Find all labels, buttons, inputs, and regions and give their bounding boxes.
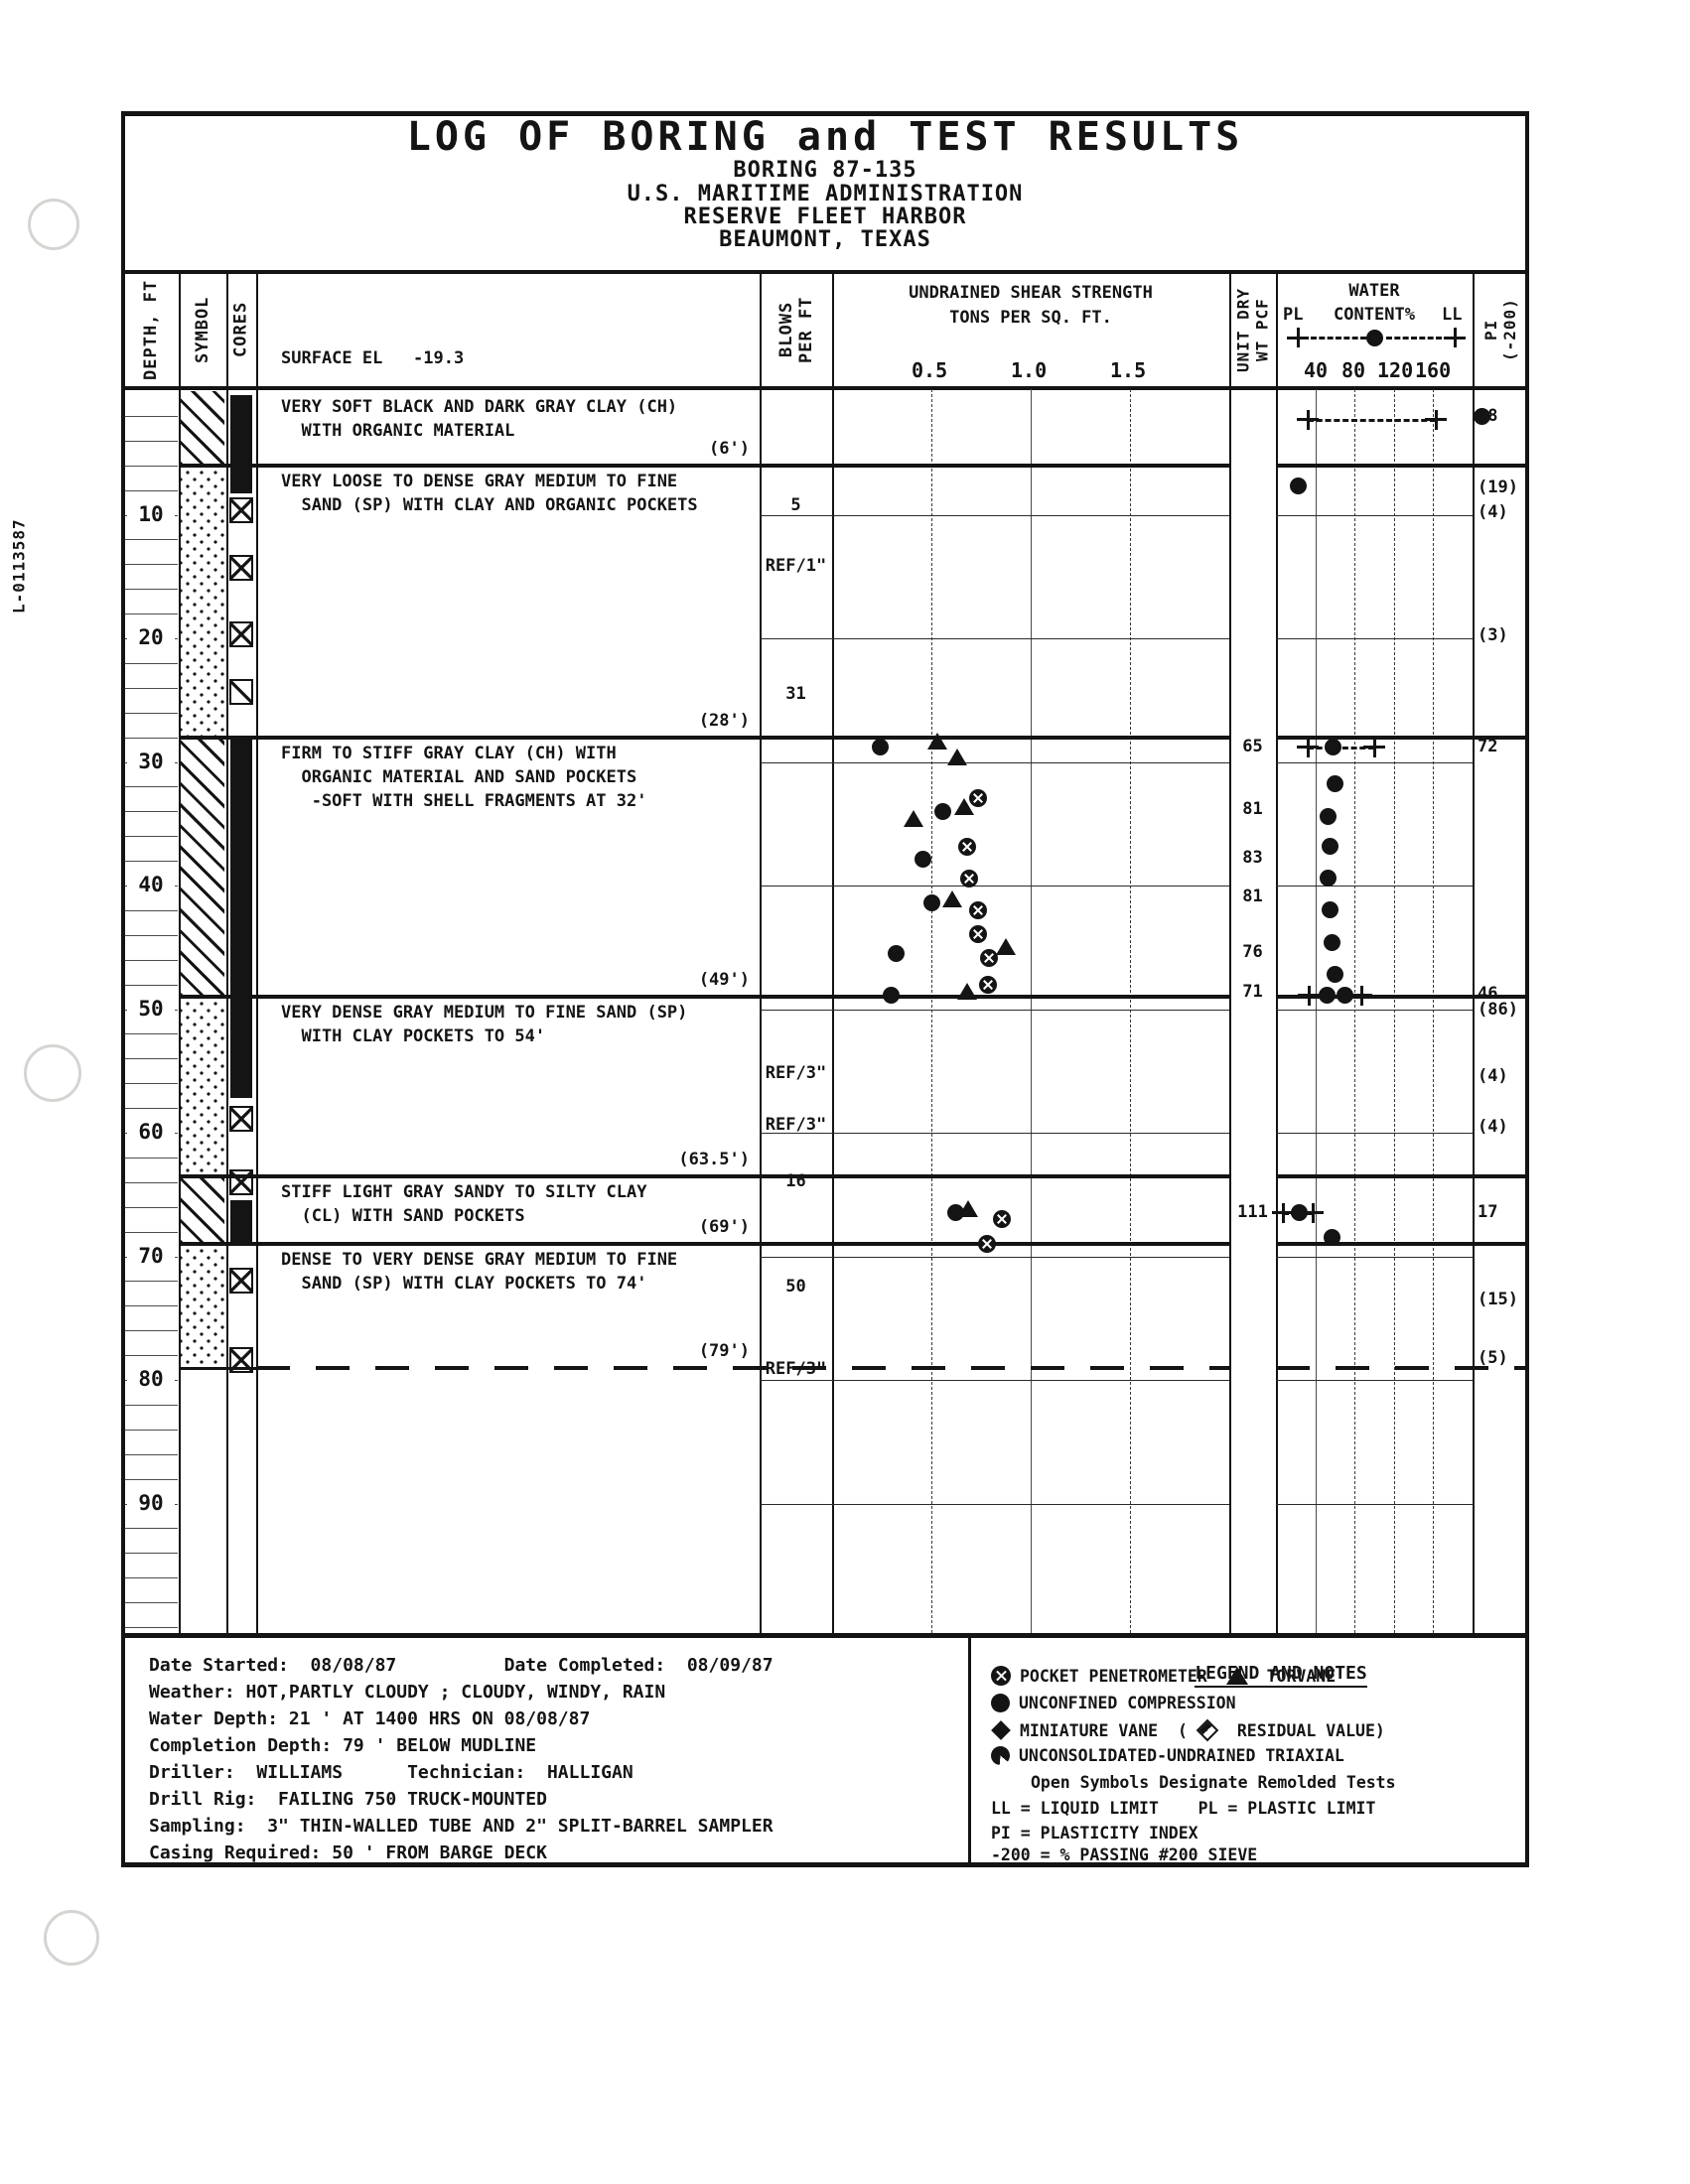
punch-hole	[44, 1910, 99, 1966]
layer-description: WITH ORGANIC MATERIAL	[281, 422, 514, 441]
layer-description: STIFF LIGHT GRAY SANDY TO SILTY CLAY	[281, 1183, 646, 1202]
shear-gridline	[931, 389, 932, 1633]
punch-hole	[28, 199, 79, 250]
legend-row: UNCONFINED COMPRESSION	[991, 1694, 1236, 1712]
legend-row: PI = PLASTICITY INDEX	[991, 1824, 1198, 1843]
unit-dry-wt-value: 71	[1229, 983, 1276, 1002]
depth-tick	[124, 935, 178, 936]
core-sample-mark	[229, 497, 253, 523]
layer-symbol-block	[181, 997, 224, 1176]
legend-row: MINIATURE VANE ( RESIDUAL VALUE)	[991, 1719, 1385, 1741]
shear-point-pocket-penetrometer	[960, 870, 978, 887]
legend-text: Open Symbols Designate Remolded Tests	[1031, 1773, 1396, 1792]
liquid-limit-mark	[1350, 986, 1372, 1006]
depth-tick	[124, 1182, 178, 1183]
legend-row: UNCONSOLIDATED-UNDRAINED TRIAXIAL	[991, 1746, 1344, 1765]
depth-tick	[124, 811, 178, 812]
legend-text: RESIDUAL VALUE)	[1227, 1721, 1385, 1740]
depth-gridline	[832, 1504, 1229, 1505]
layer-boundary-line	[179, 464, 1229, 468]
film-number-label: L-0113587	[2, 486, 36, 645]
punch-hole	[24, 1044, 81, 1102]
layer-symbol-block	[181, 391, 224, 466]
depth-tick	[124, 1232, 178, 1233]
water-content-dot	[1319, 987, 1336, 1004]
blows-value: REF/1"	[760, 557, 832, 576]
depth-tick	[124, 836, 178, 837]
depth-gridline	[760, 1504, 832, 1505]
legend-text: MINIATURE VANE (	[1020, 1721, 1188, 1740]
water-content-dot-icon	[1366, 330, 1383, 346]
layer-description: -SOFT WITH SHELL FRAGMENTS AT 32'	[281, 792, 646, 811]
depth-tick	[124, 1430, 178, 1431]
core-sample-mark	[229, 1268, 253, 1294]
layer-depth-tag: (28')	[650, 712, 750, 731]
water-gridline	[1433, 389, 1434, 1633]
depth-tick	[124, 1577, 178, 1578]
table-border-top	[121, 111, 1529, 116]
column-divider	[1473, 270, 1475, 1633]
col-header-shear-1: UNDRAINED SHEAR STRENGTH	[832, 284, 1229, 303]
column-divider	[256, 270, 258, 1633]
depth-tick	[124, 1330, 178, 1331]
legend-text: POCKET PENETROMETER	[1020, 1667, 1217, 1686]
blows-value: REF/3"	[760, 1360, 832, 1379]
liquid-limit-mark	[1425, 410, 1447, 430]
depth-tick	[124, 416, 178, 417]
water-gridline	[1354, 389, 1355, 1633]
legend-row: -200 = % PASSING #200 SIEVE	[991, 1845, 1257, 1864]
unconfined-compression-icon	[991, 1694, 1010, 1712]
water-content-dot	[1324, 934, 1340, 951]
layer-description: VERY LOOSE TO DENSE GRAY MEDIUM TO FINE	[281, 473, 677, 491]
depth-tick	[124, 441, 178, 442]
depth-tick	[124, 589, 178, 590]
layer-description: FIRM TO STIFF GRAY CLAY (CH) WITH	[281, 745, 617, 763]
depth-tick	[124, 614, 178, 614]
shear-point-torvane	[957, 983, 977, 1000]
blows-value: REF/3"	[760, 1116, 832, 1135]
shear-point-unconfined-compression	[915, 851, 931, 868]
shear-point-torvane	[996, 938, 1016, 955]
legend-text: TORVANE	[1257, 1667, 1336, 1686]
layer-boundary-line	[179, 1242, 1229, 1246]
layer-depth-tag: (79')	[650, 1342, 750, 1361]
water-content-dot	[1322, 901, 1338, 918]
blows-value: 16	[760, 1172, 832, 1191]
blows-value: 31	[760, 685, 832, 704]
depth-gridline	[1276, 1010, 1473, 1011]
layer-depth-tag: (69')	[650, 1218, 750, 1237]
header-separator	[121, 386, 1529, 390]
notes-line: Completion Depth: 79 ' BELOW MUDLINE	[149, 1736, 536, 1756]
depth-tick	[124, 1158, 178, 1159]
blows-value: 5	[760, 496, 832, 515]
water-content-dot	[1320, 870, 1337, 887]
water-tick-120: 120	[1377, 359, 1413, 381]
depth-tick	[124, 1454, 178, 1455]
water-tick-80: 80	[1341, 359, 1365, 381]
layer-boundary-line	[179, 1174, 1229, 1178]
blows-value: 50	[760, 1278, 832, 1297]
depth-gridline	[832, 1380, 1229, 1381]
water-content-dot	[1325, 739, 1341, 755]
depth-tick	[124, 663, 178, 664]
surface-elevation-label: SURFACE EL -19.3	[281, 349, 464, 368]
page-title: LOG OF BORING and TEST RESULTS	[121, 115, 1529, 159]
shear-point-unconfined-compression	[872, 739, 889, 755]
shear-point-unconfined-compression	[923, 894, 940, 911]
unit-dry-wt-value: 81	[1229, 800, 1276, 819]
liquid-limit-icon	[1444, 328, 1466, 347]
key-dash-left	[1311, 337, 1366, 340]
depth-tick	[124, 490, 178, 491]
layer-symbol-block	[181, 738, 224, 997]
col-header-pi: PI (-200)	[1475, 274, 1526, 385]
unit-dry-wt-value: 83	[1229, 849, 1276, 868]
water-gridline	[1316, 389, 1317, 1633]
water-content-dot	[1290, 478, 1307, 494]
depth-gridline	[832, 515, 1229, 516]
depth-gridline	[1276, 638, 1473, 639]
log-bottom-separator	[121, 1633, 1529, 1638]
depth-label: 40	[127, 874, 175, 896]
pi-value: 17	[1478, 1203, 1497, 1222]
water-content-dot	[1327, 775, 1343, 792]
depth-gridline	[1276, 1133, 1473, 1134]
pi-value: (5)	[1478, 1349, 1508, 1368]
residual-vane-icon	[1197, 1719, 1219, 1742]
torvane-icon	[1226, 1667, 1248, 1685]
water-tick-40: 40	[1304, 359, 1328, 381]
layer-description: SAND (SP) WITH CLAY POCKETS TO 74'	[281, 1275, 646, 1294]
blows-value: REF/3"	[760, 1064, 832, 1083]
layer-description: WITH CLAY POCKETS TO 54'	[281, 1027, 545, 1046]
core-sample-mark	[229, 1169, 253, 1195]
pi-value: (4)	[1478, 1067, 1508, 1086]
layer-boundary-line	[1276, 1174, 1529, 1178]
layer-description: DENSE TO VERY DENSE GRAY MEDIUM TO FINE	[281, 1251, 677, 1270]
notes-line: Driller: WILLIAMS Technician: HALLIGAN	[149, 1763, 634, 1783]
shear-point-torvane	[942, 890, 962, 907]
shear-point-unconfined-compression	[888, 945, 905, 962]
depth-tick	[124, 1281, 178, 1282]
core-recovery-bar	[230, 738, 252, 1099]
water-content-dot	[1322, 838, 1338, 855]
depth-gridline	[832, 1010, 1229, 1011]
pi-value: (3)	[1478, 626, 1508, 645]
shear-point-pocket-penetrometer	[979, 976, 997, 994]
depth-tick	[124, 1207, 178, 1208]
water-content-dot	[1320, 808, 1337, 825]
layer-description: VERY SOFT BLACK AND DARK GRAY CLAY (CH)	[281, 398, 677, 417]
depth-gridline	[760, 638, 832, 639]
col-header-unit-wt: UNIT DRY WT PCF	[1230, 274, 1275, 385]
notes-line: Drill Rig: FAILING 750 TRUCK-MOUNTED	[149, 1790, 547, 1810]
core-sample-mark	[229, 555, 253, 581]
plastic-limit-mark	[1297, 738, 1319, 757]
shear-point-torvane	[927, 733, 947, 750]
depth-tick	[124, 1405, 178, 1406]
layer-depth-tag: (63.5')	[650, 1151, 750, 1169]
depth-label: 70	[127, 1245, 175, 1268]
depth-gridline	[760, 886, 832, 887]
layer-boundary-line	[179, 995, 1229, 999]
legend-text: LL = LIQUID LIMIT PL = PLASTIC LIMIT	[991, 1799, 1375, 1818]
shear-point-torvane	[947, 749, 967, 765]
col-header-symbol: SYMBOL	[181, 274, 224, 385]
notes-line: Weather: HOT,PARTLY CLOUDY ; CLOUDY, WIN…	[149, 1683, 665, 1703]
water-content-dot	[1327, 966, 1343, 983]
bottom-panel-divider	[968, 1633, 971, 1866]
depth-gridline	[832, 1257, 1229, 1258]
notes-line: Sampling: 3" THIN-WALLED TUBE AND 2" SPL…	[149, 1817, 774, 1837]
layer-description: ORGANIC MATERIAL AND SAND POCKETS	[281, 768, 636, 787]
depth-gridline	[1276, 1257, 1473, 1258]
agency-name: U.S. MARITIME ADMINISTRATION	[121, 183, 1529, 206]
col-header-cores: CORES	[225, 274, 256, 385]
depth-label: 60	[127, 1121, 175, 1144]
shear-point-unconfined-compression	[934, 803, 951, 820]
legend-text: UNCONFINED COMPRESSION	[1019, 1694, 1236, 1712]
depth-tick	[124, 713, 178, 714]
depth-label: 90	[127, 1492, 175, 1515]
liquid-limit-mark	[1363, 738, 1385, 757]
unit-dry-wt-value: 76	[1229, 943, 1276, 962]
layer-symbol-block	[181, 1176, 224, 1244]
pi-value: (15)	[1478, 1291, 1518, 1309]
uu-triaxial-icon	[991, 1746, 1010, 1765]
shear-point-unconfined-compression	[883, 987, 900, 1004]
layer-boundary-line	[1276, 464, 1529, 468]
pi-value: (19)	[1478, 478, 1518, 497]
col-header-water: WATER	[1276, 282, 1473, 301]
depth-tick	[124, 539, 178, 540]
site-location: BEAUMONT, TEXAS	[121, 228, 1529, 252]
boring-number: BORING 87-135	[121, 159, 1529, 183]
col-header-shear-2: TONS PER SQ. FT.	[832, 309, 1229, 328]
water-ll-label: LL	[1442, 306, 1462, 325]
shear-point-pocket-penetrometer	[969, 901, 987, 919]
depth-gridline	[832, 1133, 1229, 1134]
shear-tick-05: 0.5	[912, 359, 947, 381]
depth-label: 10	[127, 503, 175, 526]
legend-text: -200 = % PASSING #200 SIEVE	[991, 1845, 1257, 1864]
depth-gridline	[1276, 515, 1473, 516]
shear-point-unconfined-compression	[947, 1204, 964, 1221]
layer-depth-tag: (6')	[650, 440, 750, 459]
column-divider	[760, 270, 762, 1633]
core-recovery-bar	[230, 1200, 252, 1244]
table-border-right	[1525, 111, 1529, 1866]
depth-tick	[124, 738, 178, 739]
depth-gridline	[832, 886, 1229, 887]
shear-gridline	[1031, 389, 1032, 1633]
unit-dry-wt-value: 65	[1229, 738, 1276, 756]
core-sample-mark	[229, 679, 253, 705]
miniature-vane-icon	[991, 1720, 1011, 1740]
notes-line: Date Started: 08/08/87 Date Completed: 0…	[149, 1656, 774, 1676]
pocket-penetrometer-icon	[991, 1666, 1011, 1686]
plastic-limit-mark	[1298, 986, 1320, 1006]
shear-point-pocket-penetrometer	[958, 838, 976, 856]
depth-tick	[124, 1602, 178, 1603]
unit-dry-wt-value: 81	[1229, 887, 1276, 906]
layer-boundary-line	[179, 736, 1229, 740]
notes-line: Casing Required: 50 ' FROM BARGE DECK	[149, 1843, 547, 1863]
depth-gridline	[760, 1380, 832, 1381]
depth-label: 80	[127, 1368, 175, 1391]
depth-tick	[124, 1083, 178, 1084]
depth-label: 30	[127, 751, 175, 773]
depth-tick	[124, 1058, 178, 1059]
shear-point-pocket-penetrometer	[969, 925, 987, 943]
water-tick-160: 160	[1415, 359, 1451, 381]
core-recovery-bar	[230, 395, 252, 494]
depth-tick	[124, 1553, 178, 1554]
legend-row: LL = LIQUID LIMIT PL = PLASTIC LIMIT	[991, 1799, 1375, 1818]
depth-gridline	[1276, 1504, 1473, 1505]
core-sample-mark	[229, 621, 253, 647]
shear-gridline	[1130, 389, 1131, 1633]
layer-symbol-block	[181, 1244, 224, 1368]
depth-tick	[124, 1033, 178, 1034]
depth-gridline	[760, 1257, 832, 1258]
title-separator	[121, 270, 1529, 274]
depth-tick	[124, 960, 178, 961]
depth-tick	[124, 564, 178, 565]
pi-value: 72	[1478, 738, 1497, 756]
water-limits-bar	[1308, 419, 1436, 422]
depth-gridline	[1276, 1380, 1473, 1381]
column-divider	[1276, 270, 1278, 1633]
depth-tick	[124, 1627, 178, 1628]
depth-tick	[124, 466, 178, 467]
layer-symbol-block	[181, 466, 224, 738]
col-header-blows: BLOWS PER FT	[763, 274, 830, 385]
depth-gridline	[832, 762, 1229, 763]
depth-tick	[124, 1305, 178, 1306]
legend-text: UNCONSOLIDATED-UNDRAINED TRIAXIAL	[1019, 1746, 1344, 1765]
depth-tick	[124, 786, 178, 787]
depth-tick	[124, 1355, 178, 1356]
core-sample-mark	[229, 1347, 253, 1373]
layer-boundary-line	[1276, 1242, 1529, 1246]
boring-log-sheet: L-0113587 LOG OF BORING and TEST RESULTS…	[0, 0, 1690, 2184]
core-sample-mark	[229, 1106, 253, 1132]
water-gridline	[1394, 389, 1395, 1633]
unit-dry-wt-value: 111	[1229, 1203, 1276, 1222]
depth-tick	[124, 1108, 178, 1109]
legend-row: Open Symbols Designate Remolded Tests	[1031, 1773, 1396, 1792]
layer-description: (CL) WITH SAND POCKETS	[281, 1207, 525, 1226]
layer-description: VERY DENSE GRAY MEDIUM TO FINE SAND (SP)	[281, 1004, 687, 1023]
shear-point-torvane	[954, 798, 974, 815]
depth-tick	[124, 688, 178, 689]
depth-tick	[124, 1528, 178, 1529]
depth-gridline	[760, 762, 832, 763]
shear-tick-10: 1.0	[1011, 359, 1047, 381]
col-header-depth: DEPTH, FT	[125, 274, 177, 385]
depth-tick	[124, 910, 178, 911]
column-divider	[226, 270, 228, 1633]
pi-value: (4)	[1478, 503, 1508, 522]
depth-gridline	[832, 638, 1229, 639]
layer-description: SAND (SP) WITH CLAY AND ORGANIC POCKETS	[281, 496, 698, 515]
boring-end-dashed-line	[256, 1366, 1229, 1370]
site-name: RESERVE FLEET HARBOR	[121, 205, 1529, 229]
water-content-dot	[1474, 408, 1490, 425]
legend-text: PI = PLASTICITY INDEX	[991, 1824, 1198, 1843]
plastic-limit-mark	[1297, 410, 1319, 430]
pi-value: (86)	[1478, 1001, 1518, 1020]
layer-depth-tag: (49')	[650, 971, 750, 990]
depth-tick	[124, 1479, 178, 1480]
column-divider	[832, 270, 834, 1633]
plastic-limit-icon	[1287, 328, 1309, 347]
depth-gridline	[1276, 762, 1473, 763]
depth-gridline	[1276, 886, 1473, 887]
depth-label: 50	[127, 998, 175, 1021]
shear-point-pocket-penetrometer	[993, 1210, 1011, 1228]
pi-value: (4)	[1478, 1118, 1508, 1137]
depth-tick	[124, 861, 178, 862]
notes-line: Water Depth: 21 ' AT 1400 HRS ON 08/08/8…	[149, 1709, 590, 1729]
shear-point-torvane	[904, 810, 923, 827]
depth-label: 20	[127, 626, 175, 649]
legend-row: POCKET PENETROMETER TORVANE	[991, 1666, 1336, 1686]
depth-gridline	[760, 1010, 832, 1011]
shear-tick-15: 1.5	[1110, 359, 1146, 381]
shear-point-pocket-penetrometer	[978, 1235, 996, 1253]
key-dash-right	[1386, 337, 1442, 340]
depth-tick	[124, 985, 178, 986]
